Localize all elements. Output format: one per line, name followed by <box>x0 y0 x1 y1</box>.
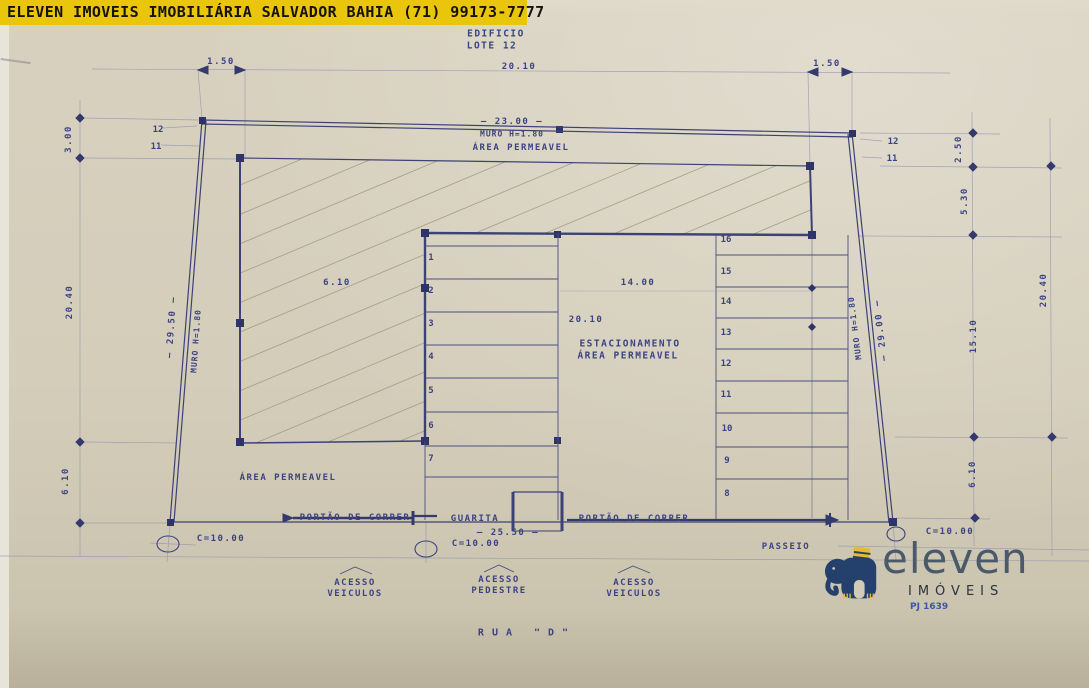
dim-top-right-setback: 1.50 <box>813 59 841 69</box>
stall-number: 8 <box>724 489 729 499</box>
logo-subtitle: IMÓVEIS <box>908 584 1004 599</box>
dim-left-top: 3.00 <box>64 125 74 153</box>
guarita-box <box>513 492 562 531</box>
parking-stalls-right <box>716 235 848 520</box>
access-vehicles-right-line1: ACESSO <box>613 578 655 588</box>
site-title-line1: EDIFICIO <box>467 29 525 40</box>
dim-top-width: 20.10 <box>502 62 537 72</box>
label-area-permeavel-top: ÁREA PERMEAVEL <box>473 143 570 153</box>
label-portao-left: PORTÃO DE CORRER <box>300 513 411 523</box>
dim-right-upper: 5.30 <box>960 187 970 215</box>
stall-number: 3 <box>428 319 433 329</box>
wall-marker-right-12: 12 <box>888 137 899 147</box>
agency-banner: ELEVEN IMOVEIS IMOBILIÁRIA SALVADOR BAHI… <box>0 0 527 25</box>
elephant-icon <box>824 544 882 618</box>
dim-left-height: 20.40 <box>65 285 75 320</box>
stall-number: 11 <box>721 390 732 400</box>
logo-registration: PJ 1639 <box>910 602 948 612</box>
stall-number: 4 <box>428 352 433 362</box>
access-vehicles-left-line1: ACESSO <box>334 578 376 588</box>
stall-number: 12 <box>721 359 732 369</box>
access-pedestrian-line2: PEDESTRE <box>471 586 526 596</box>
stall-number: 15 <box>721 267 732 277</box>
dim-gate-span: — 25.50 — <box>477 528 539 538</box>
stall-number: 10 <box>722 424 733 434</box>
agency-banner-text: ELEVEN IMOVEIS IMOBILIÁRIA SALVADOR BAHI… <box>7 3 545 21</box>
wall-marker-left-12: 12 <box>153 125 164 135</box>
dim-front-wall: — 23.00 — <box>481 117 543 127</box>
site-title-line2: LOTE 12 <box>467 41 518 52</box>
stall-number: 6 <box>428 421 433 431</box>
stall-number: 7 <box>428 454 433 464</box>
stall-number: 16 <box>721 235 732 245</box>
lot-corner-dots <box>167 117 897 526</box>
label-muro-top: MURO H=1.80 <box>480 130 544 139</box>
building-hatch <box>0 122 1089 500</box>
label-portao-right: PORTÃO DE CORRER <box>579 514 690 524</box>
wall-marker-left-11: 11 <box>151 142 162 152</box>
dim-parking-depth: 20.10 <box>569 315 604 325</box>
street-name: RUA "D" <box>478 628 576 639</box>
blueprint-photo: ELEVEN IMOVEIS IMOBILIÁRIA SALVADOR BAHI… <box>0 0 1089 688</box>
access-pedestrian-line1: ACESSO <box>478 575 520 585</box>
stall-number: 1 <box>428 253 433 263</box>
wall-marker-right-11: 11 <box>887 154 898 164</box>
dimension-ticks <box>76 66 1056 527</box>
access-carets <box>340 565 650 574</box>
stall-number: 14 <box>721 297 732 307</box>
dim-building-width: 6.10 <box>323 278 351 288</box>
label-estacionamento: ESTACIONAMENTO <box>579 339 680 350</box>
parking-stalls-left <box>425 233 558 520</box>
agency-logo: eleven IMÓVEIS PJ 1639 <box>824 544 1084 624</box>
access-vehicles-left-line2: VEICULOS <box>327 589 382 599</box>
stall-number: 5 <box>428 386 433 396</box>
dim-curb-center: C=10.00 <box>452 539 500 549</box>
dim-left-bottom: 6.10 <box>61 467 71 495</box>
dim-top-left-setback: 1.50 <box>207 57 235 67</box>
label-area-permeavel-bottom: ÁREA PERMEAVEL <box>240 473 337 483</box>
dim-right-height: 20.40 <box>1039 273 1049 308</box>
access-vehicles-right-line2: VEICULOS <box>606 589 661 599</box>
label-guarita: GUARITA <box>451 514 499 524</box>
label-passeio: PASSEIO <box>762 542 810 552</box>
stall-number: 13 <box>721 328 732 338</box>
dim-right-bottom: 6.10 <box>968 460 978 488</box>
stall-number: 9 <box>724 456 729 466</box>
stall-number: 2 <box>428 286 433 296</box>
dim-right-mid: 15.10 <box>969 319 979 354</box>
dim-curb-left: C=10.00 <box>197 534 245 544</box>
dim-parking-width: 14.00 <box>621 278 656 288</box>
dim-right-top: 2.50 <box>954 135 964 163</box>
logo-brand: eleven <box>882 534 1029 583</box>
label-estacionamento-area: ÁREA PERMEAVEL <box>577 351 678 362</box>
